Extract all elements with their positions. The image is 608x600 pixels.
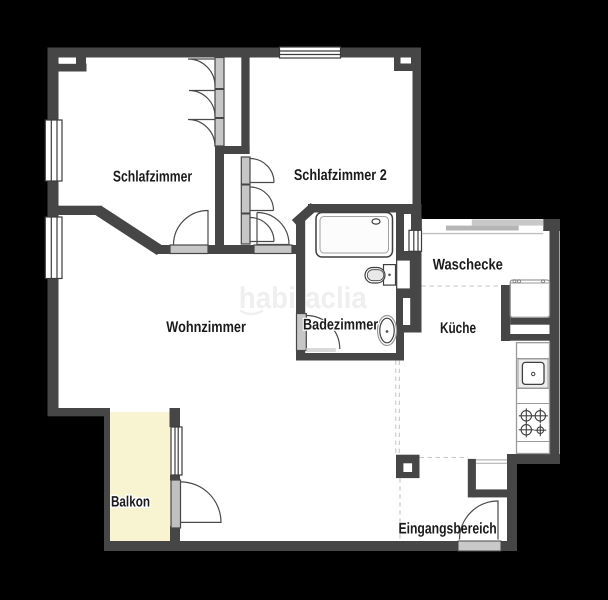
svg-text:Schlafzimmer 2: Schlafzimmer 2: [294, 167, 387, 184]
svg-text:Wohnzimmer: Wohnzimmer: [166, 319, 246, 336]
svg-text:Schlafzimmer: Schlafzimmer: [113, 169, 192, 186]
svg-text:Waschecke: Waschecke: [433, 257, 504, 274]
svg-text:Eingangsbereich: Eingangsbereich: [398, 521, 496, 538]
svg-text:Balkon: Balkon: [111, 494, 150, 511]
svg-text:Küche: Küche: [440, 320, 476, 337]
svg-text:Badezimmer: Badezimmer: [303, 317, 378, 334]
